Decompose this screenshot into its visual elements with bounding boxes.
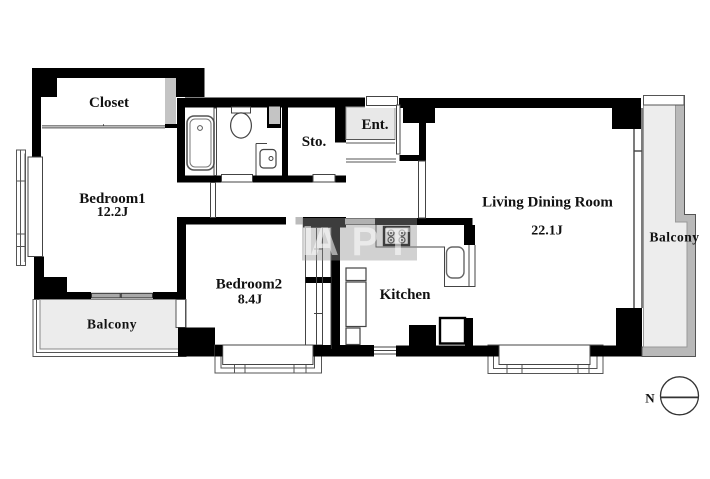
svg-text:A: A [310, 220, 339, 264]
svg-text:Closet: Closet [89, 95, 129, 111]
svg-text:Bedroom2: Bedroom2 [216, 277, 282, 293]
svg-text:N: N [645, 390, 655, 405]
svg-text:8.4J: 8.4J [238, 293, 263, 308]
svg-text:Kitchen: Kitchen [380, 287, 431, 303]
svg-text:T: T [386, 220, 410, 264]
svg-text:Sto.: Sto. [302, 134, 327, 150]
svg-text:P: P [352, 220, 379, 264]
svg-text:Living Dining Room: Living Dining Room [482, 195, 613, 211]
svg-text:Ent.: Ent. [361, 117, 388, 133]
svg-text:Balcony: Balcony [87, 317, 137, 332]
svg-text:22.1J: 22.1J [531, 224, 563, 239]
svg-text:Balcony: Balcony [649, 230, 699, 245]
svg-text:12.2J: 12.2J [97, 205, 129, 220]
